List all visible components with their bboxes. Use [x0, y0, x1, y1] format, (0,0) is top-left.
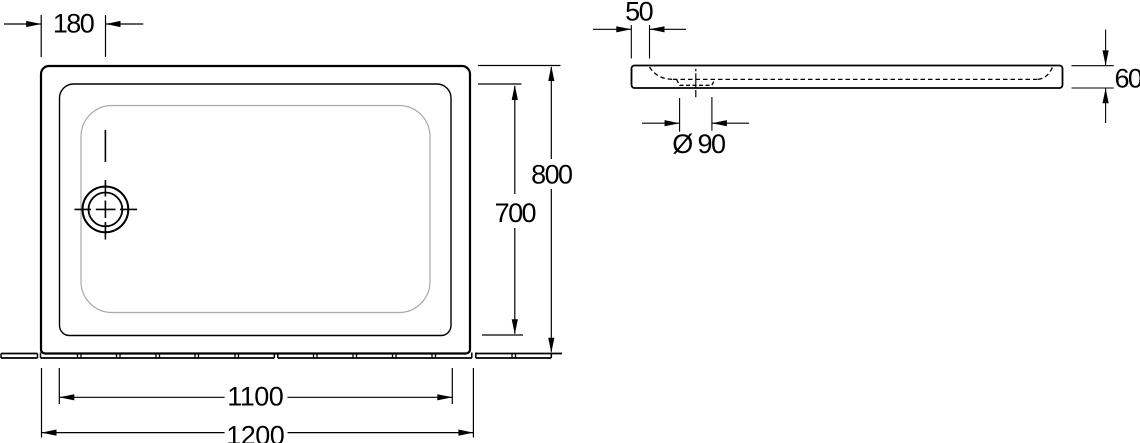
svg-text:50: 50 [625, 0, 652, 27]
svg-text:1100: 1100 [227, 382, 283, 412]
svg-text:Ø 90: Ø 90 [672, 129, 725, 159]
svg-text:180: 180 [53, 9, 94, 39]
svg-text:800: 800 [531, 159, 572, 189]
svg-text:60: 60 [1115, 64, 1140, 94]
svg-text:1200: 1200 [226, 421, 284, 443]
svg-text:700: 700 [495, 198, 536, 228]
